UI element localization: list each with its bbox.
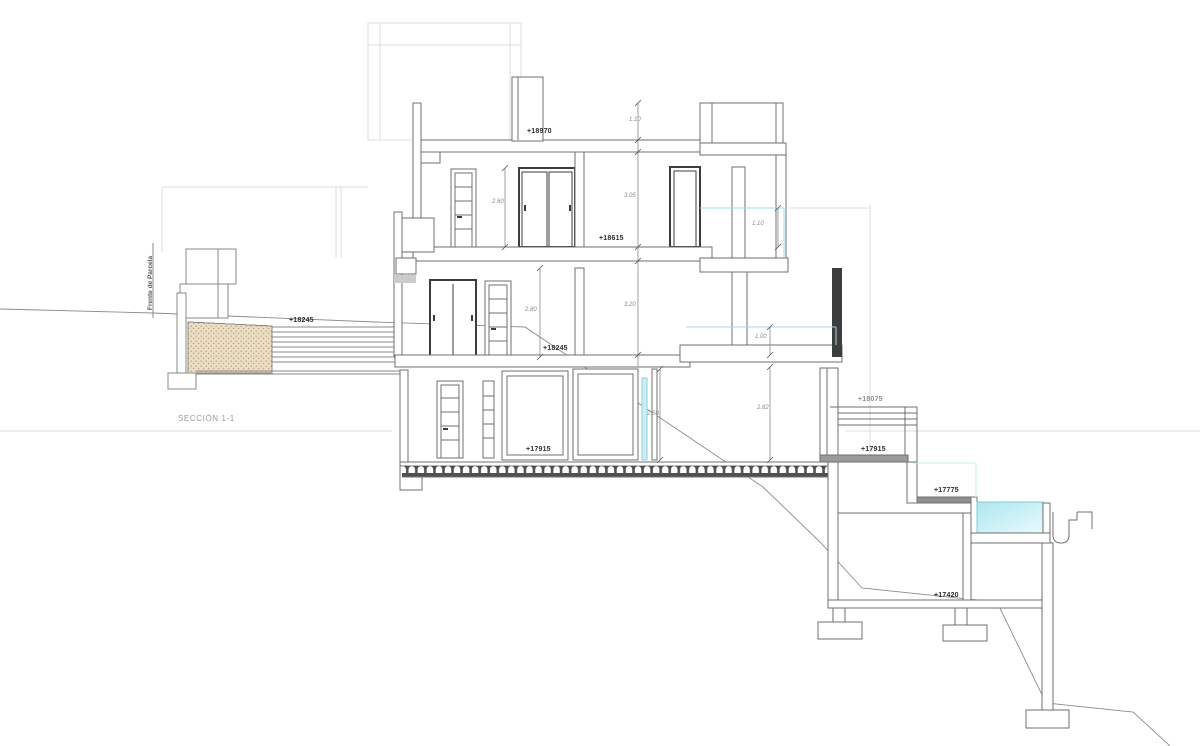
pool-edge-ledge <box>1077 512 1092 529</box>
dim-l1-left-height: 2.50 <box>647 411 659 417</box>
elevation-label-floor2-left: +18245 <box>289 317 314 324</box>
pool-wall-right <box>1043 503 1050 537</box>
wall-l3-right <box>732 167 745 258</box>
left-site-works <box>153 243 400 389</box>
level1 <box>400 368 838 490</box>
pool-floor-slab <box>971 533 1050 543</box>
floor-slab-l3 <box>413 247 712 261</box>
ground-slab-l1 <box>400 462 838 466</box>
pool <box>917 497 1092 543</box>
basement-wall-mid <box>963 513 971 600</box>
parcel-front-label: Frente de Parcela <box>148 256 155 310</box>
basement-wall-left <box>828 462 838 607</box>
floor-slab-l2 <box>395 355 690 367</box>
elevation-label-basement: +17420 <box>934 592 959 599</box>
dim-l1-right-height: 2.82 <box>757 405 769 411</box>
balcony-slab-l3 <box>700 258 788 272</box>
dim-l2-opening: 2.80 <box>525 307 537 313</box>
footing-c <box>1026 710 1069 728</box>
footing-b <box>943 625 987 641</box>
dim-roof-parapet: 1.10 <box>629 117 641 123</box>
window-l1-b <box>573 369 638 460</box>
basement-floor-slab <box>828 600 1047 608</box>
left-wall-l1 <box>400 370 408 462</box>
window-box-l2 <box>402 218 434 252</box>
elevation-label-floor3: +18615 <box>599 235 624 242</box>
overflow-gutter <box>1053 512 1077 543</box>
dim-l3-opening: 2.60 <box>492 199 504 205</box>
retaining-wall <box>177 293 186 373</box>
right-wall-l1 <box>820 368 838 462</box>
shelf-unit-l1 <box>483 381 494 458</box>
door-l1 <box>437 381 463 458</box>
pool-wall-left <box>971 497 977 537</box>
elevation-label-floor2: +18245 <box>543 345 568 352</box>
elevation-label-pool-deck: +17775 <box>934 487 959 494</box>
retaining-wall-footing <box>168 373 196 389</box>
elevation-label-floor1-right: +17915 <box>861 446 886 453</box>
left-wall-l2 <box>394 212 402 357</box>
pool-water <box>977 502 1043 533</box>
dim-l3-height: 3.05 <box>624 193 636 199</box>
footing-a <box>818 622 862 639</box>
deep-retaining-wall <box>1042 543 1053 710</box>
right-roof-slab <box>700 143 786 155</box>
arch-floor-system <box>402 466 836 477</box>
earth-fill-hatch <box>188 322 272 373</box>
elevation-label-roof: +18970 <box>527 128 552 135</box>
wall-l2 <box>575 268 584 357</box>
building-section <box>394 77 1092 728</box>
sliding-door-l2 <box>430 280 476 357</box>
section-drawing <box>0 0 1200 746</box>
glass-door-edge-l2 <box>832 268 842 357</box>
elevation-label-stair-landing: +18075 <box>858 396 883 403</box>
pool-deck-slab <box>917 497 973 503</box>
dim-l3-railing: 1.10 <box>752 221 764 227</box>
glass-partition-l1 <box>642 378 647 460</box>
landing-slab <box>820 455 908 462</box>
section-title: SECCIÓN 1-1 <box>178 415 235 423</box>
architectural-section-sheet: +18970 1.10 2.60 3.05 +18615 1.10 2.80 3… <box>0 0 1200 746</box>
door-l2 <box>485 281 511 357</box>
column-below-balcony <box>732 272 747 345</box>
dim-l2-railing: 1.00 <box>755 334 767 340</box>
terrace-slab-l2 <box>680 345 842 362</box>
dim-l2-height: 3.20 <box>624 302 636 308</box>
elevation-label-floor1: +17915 <box>526 446 551 453</box>
wall-l3 <box>575 152 584 247</box>
sliding-door-l3 <box>519 168 575 247</box>
door-l3 <box>451 169 476 247</box>
sliding-door-l3-right <box>670 167 700 247</box>
